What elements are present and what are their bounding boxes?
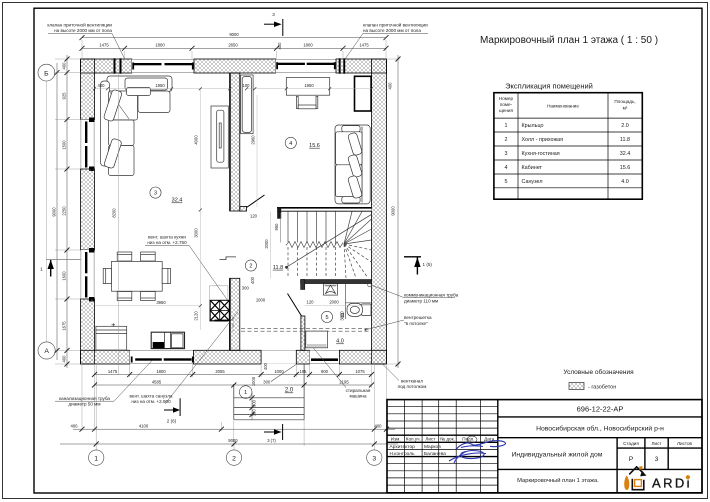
svg-text:1: 1: [244, 390, 247, 396]
svg-text:400: 400: [375, 424, 383, 429]
svg-text:2000: 2000: [329, 300, 339, 305]
svg-text:вент. шахта кухни: вент. шахта кухни: [148, 235, 186, 240]
svg-text:2250: 2250: [61, 206, 66, 216]
svg-text:900: 900: [321, 369, 329, 374]
svg-text:№ док.: № док.: [440, 436, 455, 441]
svg-text:1600: 1600: [61, 271, 66, 281]
svg-text:3: 3: [372, 455, 376, 462]
svg-text:300: 300: [242, 285, 250, 290]
svg-text:120: 120: [250, 214, 258, 219]
svg-text:3000: 3000: [340, 311, 345, 321]
svg-text:Изм.: Изм.: [391, 436, 401, 441]
svg-text:Н.контроль: Н.контроль: [390, 451, 415, 457]
svg-text:вентрешетка: вентрешетка: [404, 315, 432, 320]
svg-text:925: 925: [61, 92, 66, 100]
svg-text:1475: 1475: [108, 369, 118, 374]
svg-text:Баланева: Баланева: [424, 451, 446, 457]
svg-text:стиральная: стиральная: [346, 388, 371, 393]
svg-text:3 (7): 3 (7): [267, 438, 276, 443]
svg-text:195: 195: [300, 369, 308, 374]
svg-text:400: 400: [61, 355, 66, 363]
svg-text:950: 950: [274, 223, 279, 231]
svg-text:Стадия: Стадия: [623, 441, 639, 446]
svg-text:Экспликация помещений: Экспликация помещений: [505, 82, 593, 91]
svg-text:3: 3: [505, 151, 508, 157]
svg-text:1: 1: [40, 267, 43, 272]
svg-text:1475: 1475: [99, 43, 109, 48]
svg-text:Лист: Лист: [425, 436, 436, 441]
svg-text:400: 400: [71, 424, 79, 429]
svg-text:на высоте 2000 мм от пола: на высоте 2000 мм от пола: [363, 28, 421, 33]
svg-text:низ на отм. +2.900: низ на отм. +2.900: [131, 399, 171, 404]
svg-text:4100: 4100: [139, 424, 149, 429]
svg-text:клапан приточной вентиляции: клапан приточной вентиляции: [47, 22, 112, 28]
svg-text:1: 1: [94, 455, 98, 462]
svg-text:м²: м²: [623, 106, 628, 111]
svg-text:Марков: Марков: [424, 444, 441, 450]
svg-text:1800: 1800: [303, 43, 313, 48]
svg-text:2 (6): 2 (6): [167, 419, 177, 424]
svg-text:4: 4: [289, 141, 292, 147]
svg-text:1475: 1475: [359, 43, 369, 48]
svg-text:9000: 9000: [391, 206, 396, 216]
svg-text:1075: 1075: [355, 369, 365, 374]
svg-text:11.8: 11.8: [620, 137, 630, 143]
svg-text:1000: 1000: [251, 376, 256, 386]
svg-text:вентканал: вентканал: [401, 379, 423, 384]
svg-text:Крыльцо: Крыльцо: [522, 123, 544, 129]
svg-text:2120: 2120: [194, 311, 199, 321]
svg-text:300: 300: [252, 399, 257, 407]
svg-text:1800: 1800: [155, 43, 165, 48]
svg-text:4585: 4585: [152, 379, 162, 384]
svg-text:1950: 1950: [155, 83, 165, 88]
svg-text:8200: 8200: [112, 208, 117, 218]
svg-text:100: 100: [243, 83, 251, 88]
svg-text:под потолком: под потолком: [398, 384, 427, 389]
svg-text:15.6: 15.6: [620, 165, 631, 171]
svg-text:Номер: Номер: [499, 96, 514, 101]
svg-text:400: 400: [98, 83, 106, 88]
svg-text:400: 400: [388, 82, 393, 90]
svg-text:400: 400: [263, 362, 268, 370]
svg-text:4000: 4000: [194, 135, 199, 145]
svg-text:Б: Б: [44, 70, 49, 77]
svg-text:1000: 1000: [256, 298, 266, 303]
svg-text:32.4: 32.4: [172, 198, 183, 204]
svg-text:1 (5): 1 (5): [423, 262, 433, 267]
svg-text:9000: 9000: [51, 207, 56, 217]
svg-text:коммуникационная труба: коммуникационная труба: [404, 292, 459, 297]
svg-text:поме-: поме-: [500, 102, 513, 107]
svg-text:диаметр 50 мм: диаметр 50 мм: [69, 402, 101, 407]
svg-text:низ на отм. +2.750: низ на отм. +2.750: [147, 240, 187, 245]
svg-text:диаметр 110 мм: диаметр 110 мм: [404, 299, 438, 304]
svg-text:Площадь,: Площадь,: [614, 99, 635, 104]
svg-text:Маркировочный план 1 этажа ( 1: Маркировочный план 1 этажа ( 1 : 50 ): [480, 35, 658, 46]
svg-text:Лист: Лист: [652, 441, 663, 446]
svg-text:Архитектор: Архитектор: [390, 444, 416, 450]
svg-text:"в потолке": "в потолке": [404, 321, 428, 326]
svg-text:1500: 1500: [61, 140, 66, 150]
svg-text:щения: щения: [499, 108, 513, 113]
svg-text:4.0: 4.0: [621, 179, 629, 185]
svg-text:2.0: 2.0: [621, 123, 629, 129]
svg-text:Р: Р: [629, 456, 633, 463]
svg-text:2055: 2055: [215, 369, 225, 374]
svg-text:1950: 1950: [304, 83, 314, 88]
svg-text:1: 1: [505, 123, 508, 129]
svg-text:4: 4: [505, 165, 508, 171]
svg-text:120: 120: [307, 300, 315, 305]
svg-text:2195: 2195: [339, 379, 349, 384]
svg-text:696-12-22-АР: 696-12-22-АР: [577, 405, 624, 414]
svg-text:2.0: 2.0: [285, 388, 294, 394]
svg-text:1800: 1800: [156, 369, 166, 374]
svg-text:11.8: 11.8: [273, 265, 283, 271]
svg-text:Условные обозначения: Условные обозначения: [563, 368, 634, 376]
svg-text:Листов: Листов: [677, 441, 692, 446]
svg-text:2650: 2650: [228, 43, 238, 48]
svg-text:Холл - прихожая: Холл - прихожая: [522, 137, 564, 143]
svg-text:Кабинет: Кабинет: [522, 165, 543, 171]
svg-text:3: 3: [655, 456, 659, 463]
svg-text:1675: 1675: [61, 321, 66, 331]
svg-text:400: 400: [61, 62, 66, 70]
svg-text:2: 2: [232, 455, 236, 462]
svg-text:5: 5: [505, 179, 508, 185]
svg-text:2: 2: [505, 137, 508, 143]
svg-text:Новосибирская обл., Новосибирс: Новосибирская обл., Новосибирский р-н: [536, 425, 664, 433]
svg-text:Индивидуальный жилой дом: Индивидуальный жилой дом: [512, 451, 603, 459]
svg-text:вент. шахта санузла: вент. шахта санузла: [130, 393, 173, 398]
svg-text:Наименование: Наименование: [547, 104, 579, 109]
svg-text:на высоте 2000 мм от пола: на высоте 2000 мм от пола: [54, 28, 112, 33]
svg-text:9000: 9000: [228, 438, 238, 443]
svg-text:3: 3: [154, 191, 157, 197]
svg-text:3000: 3000: [194, 228, 199, 238]
svg-text:3950: 3950: [156, 300, 166, 305]
svg-text:400: 400: [250, 276, 255, 284]
svg-text:2960: 2960: [250, 135, 255, 145]
svg-text:Маркировочный план 1 этажа.: Маркировочный план 1 этажа.: [517, 477, 599, 484]
svg-text:32.4: 32.4: [620, 151, 631, 157]
svg-text:Санузел: Санузел: [522, 179, 543, 185]
svg-text:9000: 9000: [229, 32, 239, 37]
svg-text:клапан приточной вентиляции: клапан приточной вентиляции: [363, 22, 428, 28]
svg-text:300: 300: [252, 409, 257, 417]
svg-text:- газобетон: - газобетон: [588, 385, 616, 391]
svg-text:2: 2: [249, 264, 252, 270]
svg-text:300: 300: [263, 379, 271, 384]
svg-text:1000: 1000: [274, 369, 284, 374]
svg-text:2000: 2000: [264, 239, 269, 249]
svg-text:машина: машина: [349, 394, 367, 399]
svg-text:Кол.уч.: Кол.уч.: [406, 436, 421, 441]
svg-text:5: 5: [325, 315, 328, 321]
svg-text:Кухня-гостиная: Кухня-гостиная: [522, 151, 560, 157]
svg-text:А: А: [44, 348, 49, 355]
svg-text:4.0: 4.0: [336, 339, 344, 345]
svg-text:канализационная труба: канализационная труба: [59, 396, 110, 401]
svg-text:15.6: 15.6: [309, 143, 320, 149]
svg-text:400: 400: [277, 42, 282, 50]
svg-text:3: 3: [272, 12, 275, 17]
